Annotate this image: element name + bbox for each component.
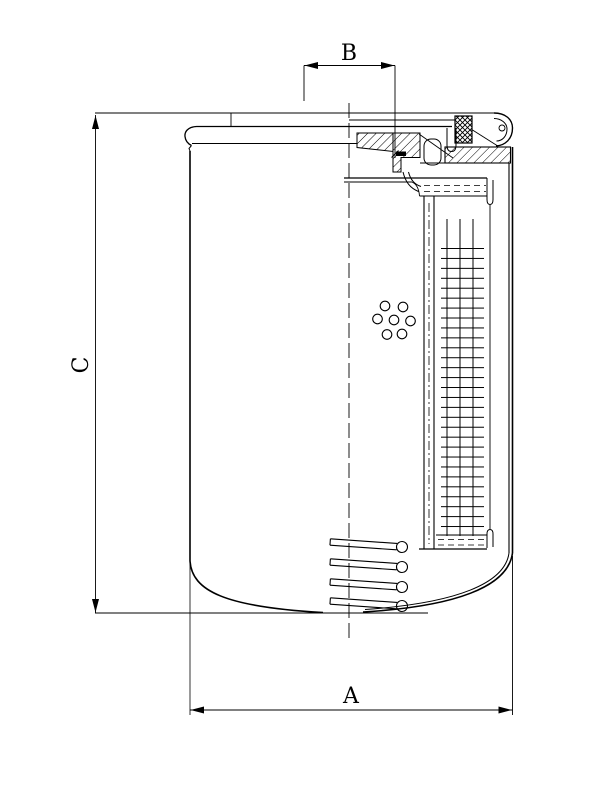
filter-cross-section-drawing: B C A <box>0 0 612 792</box>
drawing-page: B C A <box>0 0 612 792</box>
dim-label-b: B <box>341 41 357 66</box>
thread-mark <box>396 152 406 157</box>
dim-label-a: A <box>342 684 360 709</box>
media-grid <box>441 219 484 536</box>
paper-background <box>0 0 612 792</box>
dim-label-c: C <box>69 357 94 374</box>
bypass-valve-body <box>424 139 441 165</box>
gasket-crosshatch <box>455 116 472 143</box>
